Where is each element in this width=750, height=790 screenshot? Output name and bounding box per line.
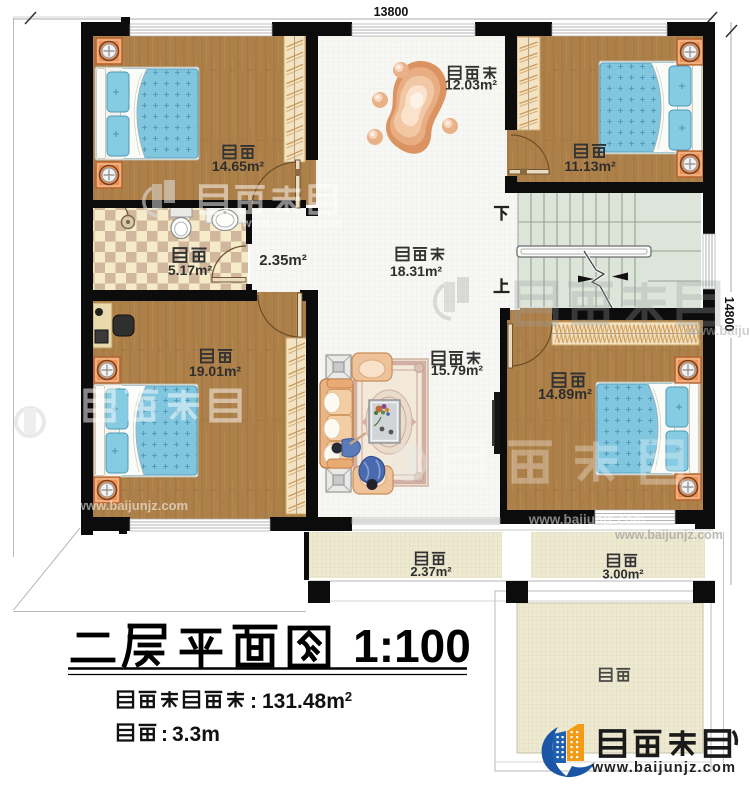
svg-text:2.35m²: 2.35m² [259, 252, 307, 269]
svg-text:19.01m²: 19.01m² [189, 363, 241, 379]
svg-text:www.baijunjz.com: www.baijunjz.com [614, 528, 723, 542]
svg-text:15.79m²: 15.79m² [431, 362, 483, 378]
svg-text:3.00m²: 3.00m² [602, 567, 644, 582]
svg-text:14.65m²: 14.65m² [212, 158, 264, 174]
svg-text:www.baijunjz.com: www.baijunjz.com [528, 512, 646, 527]
svg-text:1:100: 1:100 [353, 620, 471, 672]
svg-text:11.13m²: 11.13m² [564, 158, 616, 174]
svg-text:www.baijunjz.com: www.baijunjz.com [685, 323, 750, 338]
svg-text:14.89m²: 14.89m² [538, 387, 592, 403]
svg-text:www.baijunjz.com: www.baijunjz.com [591, 760, 736, 776]
svg-text:2.37m²: 2.37m² [410, 564, 452, 579]
svg-text:www.baijunjz.com: www.baijunjz.com [241, 218, 341, 230]
svg-text:18.31m²: 18.31m² [390, 263, 442, 279]
svg-text::: : [161, 723, 168, 746]
svg-text:5.17m²: 5.17m² [168, 262, 213, 278]
svg-text:www.baijunjz.com: www.baijunjz.com [75, 498, 188, 513]
svg-text::: : [250, 690, 257, 713]
svg-text:131.48m2: 131.48m2 [262, 689, 352, 713]
svg-text:3.3m: 3.3m [172, 723, 220, 746]
svg-text:13800: 13800 [374, 5, 409, 19]
svg-text:12.03m²: 12.03m² [445, 77, 497, 93]
